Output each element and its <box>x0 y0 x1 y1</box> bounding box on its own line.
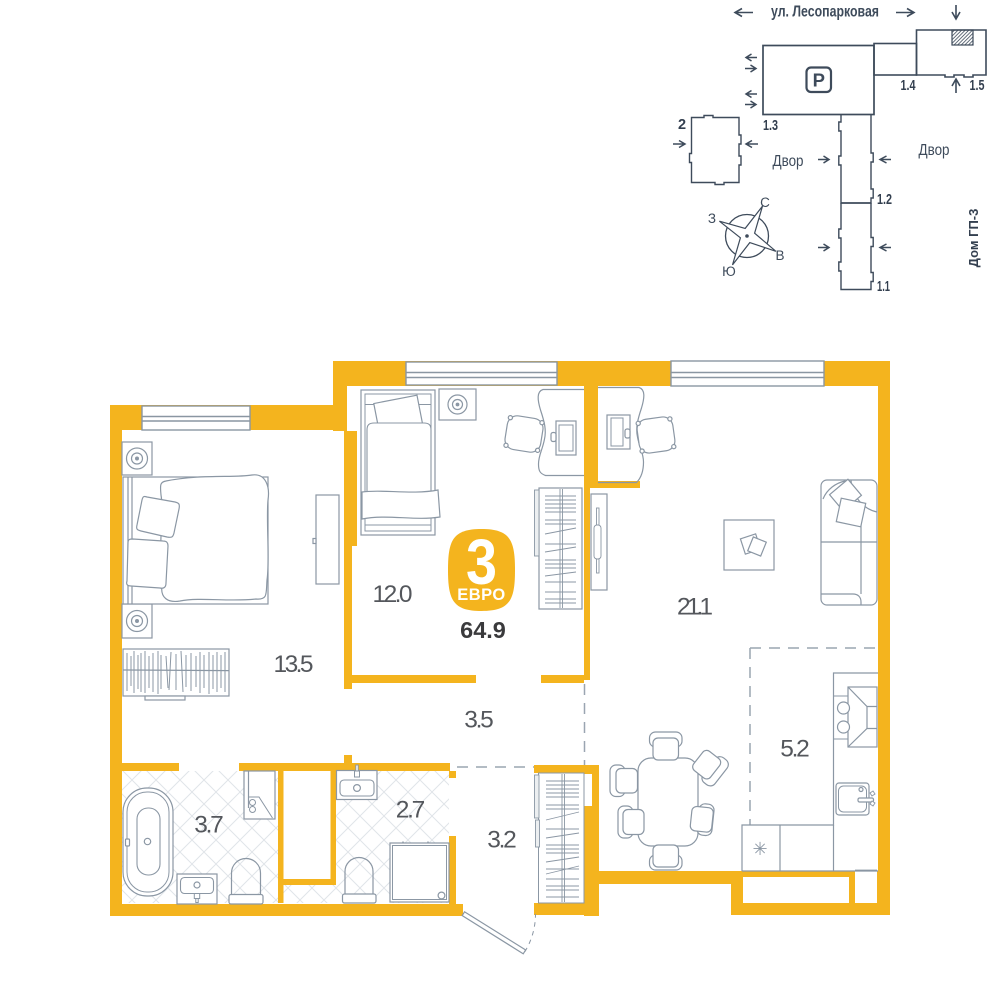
svg-text:Ю: Ю <box>722 264 736 279</box>
svg-text:1.5: 1.5 <box>970 77 985 94</box>
svg-text:Двор: Двор <box>773 153 804 170</box>
svg-text:1.2: 1.2 <box>877 191 892 208</box>
svg-text:Дом ГП-3: Дом ГП-3 <box>966 209 981 268</box>
svg-text:12.0: 12.0 <box>373 581 413 608</box>
svg-text:21.1: 21.1 <box>677 594 713 621</box>
svg-text:1.3: 1.3 <box>763 117 778 134</box>
svg-text:С: С <box>760 195 770 210</box>
svg-text:5.2: 5.2 <box>780 736 810 763</box>
svg-text:ул. Лесопарковая: ул. Лесопарковая <box>771 4 879 21</box>
svg-text:3.7: 3.7 <box>194 812 224 839</box>
svg-text:2: 2 <box>678 117 686 133</box>
svg-text:1.1: 1.1 <box>877 278 890 295</box>
svg-text:13.5: 13.5 <box>274 651 314 678</box>
svg-text:3.5: 3.5 <box>464 707 494 734</box>
svg-text:Двор: Двор <box>919 142 950 159</box>
svg-text:З: З <box>708 211 716 226</box>
svg-text:В: В <box>775 248 784 263</box>
svg-text:64.9: 64.9 <box>460 617 506 643</box>
svg-text:P: P <box>813 70 825 91</box>
svg-text:2.7: 2.7 <box>396 797 426 824</box>
svg-text:ЕВРО: ЕВРО <box>457 586 506 604</box>
svg-text:✳: ✳ <box>752 839 767 859</box>
svg-text:3.2: 3.2 <box>487 827 517 854</box>
svg-text:1.4: 1.4 <box>901 77 916 94</box>
